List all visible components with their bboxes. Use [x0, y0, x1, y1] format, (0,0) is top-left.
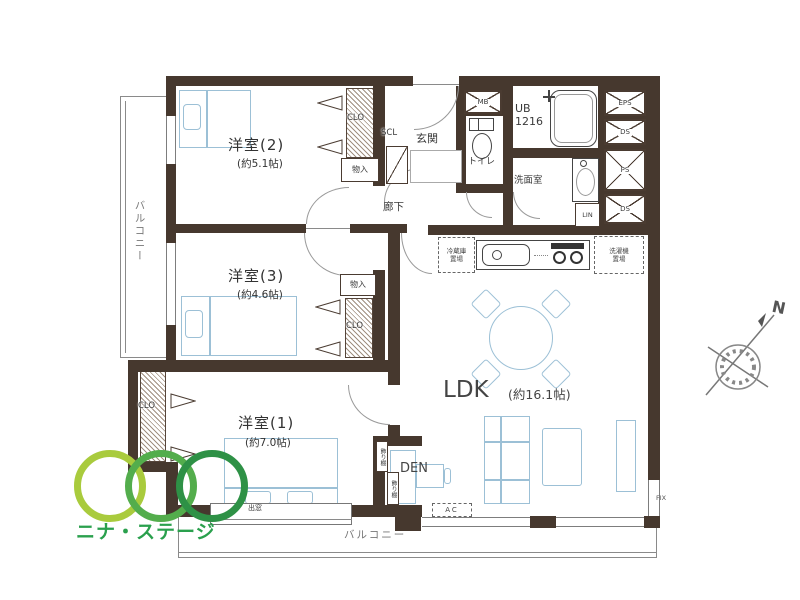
den-label: DEN — [400, 462, 428, 476]
window-western2 — [166, 116, 176, 164]
bath-faucet-v — [548, 90, 550, 102]
closet-w3-label: CLO — [346, 322, 363, 331]
storage-western2-box: 物入 — [341, 158, 379, 182]
washbasin-tap-icon — [580, 160, 587, 167]
stove-burner-right-icon — [570, 251, 583, 264]
dining-chair-ne — [540, 288, 571, 319]
pillow-western2 — [183, 104, 201, 130]
bay-window-inner-line — [210, 519, 352, 520]
toilet-door-arc — [466, 192, 492, 218]
balcony-bottom-outer-line1 — [178, 552, 657, 553]
wall — [166, 76, 413, 86]
balcony-left-outer-line — [120, 96, 121, 358]
balcony-bottom-outer-line2 — [178, 557, 657, 558]
toilet-bowl-icon — [472, 133, 492, 159]
wall — [352, 505, 422, 517]
tv-board — [616, 420, 636, 492]
entrance-door-arc — [414, 86, 459, 130]
hallway-label: 廊下 — [383, 202, 404, 214]
shoe-closet-box — [386, 146, 408, 184]
door-threshold — [306, 228, 350, 229]
wall — [648, 76, 660, 480]
pillow-western3 — [185, 310, 203, 338]
western3-name: 洋室(3) — [228, 268, 284, 285]
fridge-space-label: 冷蔵庫 置場 — [447, 247, 467, 263]
ldk-size: (約16.1帖) — [508, 388, 571, 402]
western1-door-arc — [348, 385, 390, 425]
logo-text: ニナ・ステージ — [76, 522, 216, 543]
meter-box: MB — [464, 90, 502, 114]
kitchen-sink — [482, 244, 530, 266]
western2-size: (約5.1帖) — [237, 159, 283, 171]
display-shelf-1-box: 飾り棚 — [376, 441, 388, 472]
dining-chair-nw — [470, 288, 501, 319]
linen-box: LIN — [575, 203, 600, 227]
closet-w1-arrow-top-icon — [170, 393, 196, 409]
fridge-space-box: 冷蔵庫 置場 — [438, 237, 475, 273]
washroom-label: 洗面室 — [514, 176, 543, 186]
ac-marker: AC — [432, 503, 472, 517]
toilet-label: トイレ — [468, 158, 495, 168]
stove-grill-icon — [551, 243, 584, 249]
sofa-line-v — [500, 417, 502, 503]
window-western3 — [166, 243, 176, 325]
ps-box: PS — [604, 149, 646, 191]
coffee-table — [542, 428, 582, 486]
sofa-line-h2 — [485, 479, 529, 481]
bathtub-inner-icon — [554, 94, 593, 143]
ds-upper-label: DS — [618, 129, 632, 136]
wall — [459, 76, 660, 86]
washer-space-label: 洗濯機 置場 — [609, 247, 629, 263]
wall — [530, 516, 556, 528]
eps-label: EPS — [616, 100, 633, 107]
balcony-bottom-label: バルコニー — [344, 530, 406, 542]
western1-name: 洋室(1) — [238, 415, 294, 432]
balcony-left-inner-line — [125, 101, 126, 353]
display-shelf-1-label: 飾り棚 — [379, 448, 385, 466]
washer-space-box: 洗濯機 置場 — [594, 236, 644, 274]
wall — [128, 360, 400, 372]
washroom-door-arc — [513, 192, 540, 219]
sink-drain-icon — [492, 250, 502, 260]
dining-table — [489, 306, 553, 370]
wall — [166, 224, 306, 233]
display-shelf-2-label: 飾り棚 — [390, 480, 396, 498]
toilet-tank-line — [478, 119, 479, 130]
balcony-left-label: バルコニー — [133, 200, 145, 263]
toilet-tank-icon — [469, 118, 494, 131]
ldk-name: LDK — [443, 378, 489, 403]
floor-plan: バルコニー バルコニー — [0, 0, 800, 600]
wall — [644, 516, 660, 528]
closet-w3-arrow-bottom-icon — [315, 341, 341, 357]
western3-size: (約4.6帖) — [237, 290, 283, 302]
bay-window-label: 出窓 — [246, 505, 264, 513]
wall — [350, 224, 407, 233]
balcony-divider-wall — [395, 517, 421, 531]
fix-window-label: FIX — [656, 495, 666, 502]
linen-label: LIN — [582, 212, 592, 219]
ldk-door-arc — [401, 233, 432, 274]
closet-western1-hatch — [140, 370, 166, 462]
balcony-left-top-line — [120, 96, 166, 97]
wall — [513, 148, 603, 158]
storage-western2-label: 物入 — [352, 166, 368, 174]
eps-box: EPS — [604, 90, 646, 116]
sofa — [484, 416, 530, 504]
closet-w2-label: CLO — [347, 114, 364, 123]
storage-western3-label: 物入 — [350, 281, 366, 289]
bed-western3-line — [209, 297, 211, 355]
den-chair — [444, 468, 451, 484]
closet-w1-label: CLO — [138, 402, 155, 411]
entrance-step — [410, 150, 462, 183]
dining-chair-se — [540, 358, 571, 389]
logo-ring-3 — [176, 450, 248, 522]
bed-western2-line — [206, 91, 208, 147]
counter-dotted-line — [534, 255, 548, 256]
ps-label: PS — [619, 167, 632, 174]
ds-lower-box: DS — [604, 194, 646, 224]
western3-door-arc — [304, 233, 347, 276]
shoe-closet-label: SCL — [381, 129, 397, 138]
ds-upper-box: DS — [604, 119, 646, 145]
unit-bath-label: UB 1216 — [515, 102, 543, 128]
meter-box-label: MB — [476, 99, 491, 106]
balcony-left-bottom-line — [120, 357, 166, 358]
ds-lower-label: DS — [618, 206, 632, 213]
entrance-door-threshold — [413, 84, 459, 85]
western2-door-arc — [306, 187, 349, 224]
storage-western3-box: 物入 — [340, 274, 376, 296]
closet-w3-arrow-top-icon — [315, 299, 341, 315]
ac-label: AC — [445, 506, 459, 515]
wall — [383, 436, 422, 446]
display-shelf-2-box: 飾り棚 — [387, 472, 399, 505]
entrance-label: 玄関 — [416, 133, 438, 145]
closet-w2-arrow-top-icon — [317, 95, 343, 111]
sofa-line-h1 — [485, 441, 529, 443]
western1-size: (約7.0帖) — [245, 438, 291, 450]
stove-burner-left-icon — [553, 251, 566, 264]
washbasin-bowl-icon — [576, 168, 595, 196]
closet-w2-arrow-bottom-icon — [317, 139, 343, 155]
western2-name: 洋室(2) — [228, 137, 284, 154]
